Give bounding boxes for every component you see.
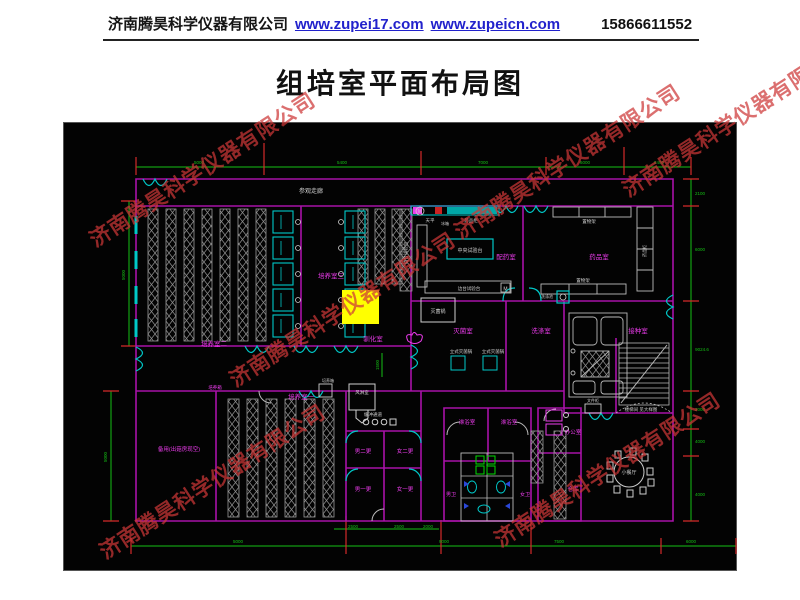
room-peiyang1: 培养室一	[288, 392, 315, 401]
room-nvwei: 女卫	[520, 491, 530, 498]
floorplan-svg: M M 参观走廊培养室二培养室三驯化室培养室一培养箱备用(出菇房现空)配药室药品…	[64, 123, 738, 572]
dim-label: 5000	[103, 451, 108, 462]
dim-label: 6000	[695, 247, 706, 252]
dim-label: 4000	[695, 439, 706, 444]
room-beiyong: 备用(出菇房现空)	[158, 445, 200, 453]
room-nv2geng: 女二更	[397, 447, 414, 455]
dim-label: 5000	[194, 160, 205, 165]
room-nv1geng: 女一更	[397, 485, 414, 493]
dim-label: 6000	[686, 539, 697, 544]
tag-lishi-1: 立式灭菌锅	[450, 348, 473, 355]
phone-number: 15866611552	[601, 16, 692, 33]
room-xunhua: 驯化室	[363, 334, 383, 343]
dim-label: 4000	[695, 492, 706, 497]
highlight-yellow-box[interactable]	[342, 290, 379, 324]
dim-label: 9000	[439, 539, 450, 544]
equipment-glyphs: M M	[407, 207, 508, 344]
room-linyu-2: 淋浴室	[501, 418, 518, 426]
dim-label: 2000	[695, 407, 706, 412]
dim-label: 7500	[554, 539, 565, 544]
dim-label: 2500	[348, 524, 359, 529]
dimension-ticks	[103, 143, 736, 554]
room-nanwei: 男卫	[446, 492, 456, 498]
room-fenglin: 风淋室	[355, 389, 369, 396]
toilet-fixtures	[461, 453, 513, 521]
dim-label: 5000	[121, 269, 126, 280]
tag-yaogui-vert: 药品柜	[641, 245, 647, 257]
page-title: 组培室平面布局图	[0, 62, 800, 102]
svg-text:M: M	[503, 287, 507, 293]
room-nan1geng: 男一更	[355, 486, 372, 493]
clean-bench	[569, 313, 627, 397]
header: 济南腾昊科学仪器有限公司 www.zupei17.com www.zupeicn…	[0, 13, 800, 34]
dim-label: 7000	[478, 160, 489, 165]
room-bangong: 办公室	[565, 428, 582, 436]
dim-label: 2100	[695, 191, 706, 196]
room-jiezhong: 接种室	[628, 326, 648, 335]
tag-peiyangxiang-2: 培养箱	[322, 377, 334, 383]
dim-label: 2000	[423, 524, 434, 529]
room-peiyang3: 培养室三	[318, 271, 345, 280]
dim-label: 2500	[394, 524, 405, 529]
doors-white	[259, 391, 556, 521]
tag-yaopingui: 药品柜	[464, 217, 478, 224]
tag-lishi-2: 立式灭菌锅	[482, 348, 505, 355]
dim-label: 9024.6	[695, 347, 709, 352]
tag-huanchong: 缓冲通道	[364, 411, 382, 418]
room-nan2geng: 男二更	[355, 448, 372, 455]
stairs	[616, 343, 672, 413]
room-cangku: 仓库	[567, 485, 579, 493]
tag-zhiwujia-2: 置物架	[576, 277, 590, 284]
room-linyu-1: 淋浴室	[459, 418, 476, 426]
link-zupei17[interactable]: www.zupei17.com	[295, 16, 424, 33]
tag-tianping: 天平	[426, 218, 435, 224]
tag-louti: 楼梯间 见大样图	[625, 406, 658, 413]
room-miejun: 灭菌室	[453, 326, 473, 335]
bench-central: 中央试验台	[457, 247, 482, 254]
room-peiyang2: 培养室二	[201, 339, 228, 348]
tag-zhiwujia-1: 置物架	[582, 218, 596, 225]
tag-bingxiang: 冰箱	[441, 220, 449, 226]
room-canting: 小餐厅	[621, 469, 636, 476]
dim-label: 5000	[233, 539, 244, 544]
company-name: 济南腾昊科学仪器有限公司	[108, 13, 288, 34]
bench-side-1: 边台试验台	[458, 285, 481, 292]
dim-label: 5400	[337, 160, 348, 165]
tag-xidichi: 洗涤池	[541, 293, 553, 299]
tag-wenjiangui: 文件柜	[587, 397, 599, 403]
room-xidi: 洗涤室	[531, 326, 551, 335]
room-peiyao: 配药室	[496, 252, 516, 261]
dim-label: 1500	[375, 359, 380, 370]
svg-text:M: M	[418, 209, 422, 215]
tag-peiyangxiang: 培养箱	[208, 384, 222, 391]
page: 济南腾昊科学仪器有限公司 www.zupei17.com www.zupeicn…	[0, 0, 800, 600]
room-yaopin: 药品室	[589, 252, 609, 261]
link-zupeicn[interactable]: www.zupeicn.com	[431, 16, 560, 33]
dim-label: 6000	[580, 160, 591, 165]
floorplan-canvas: M M 参观走廊培养室二培养室三驯化室培养室一培养箱备用(出菇房现空)配药室药品…	[63, 122, 737, 571]
dim-label: 8400	[654, 160, 665, 165]
tag-miejunguo: 灭菌锅	[430, 308, 445, 315]
header-divider	[103, 39, 699, 41]
bench-side-2: 边台试验台	[402, 241, 409, 264]
corridor-label: 参观走廊	[299, 187, 323, 195]
